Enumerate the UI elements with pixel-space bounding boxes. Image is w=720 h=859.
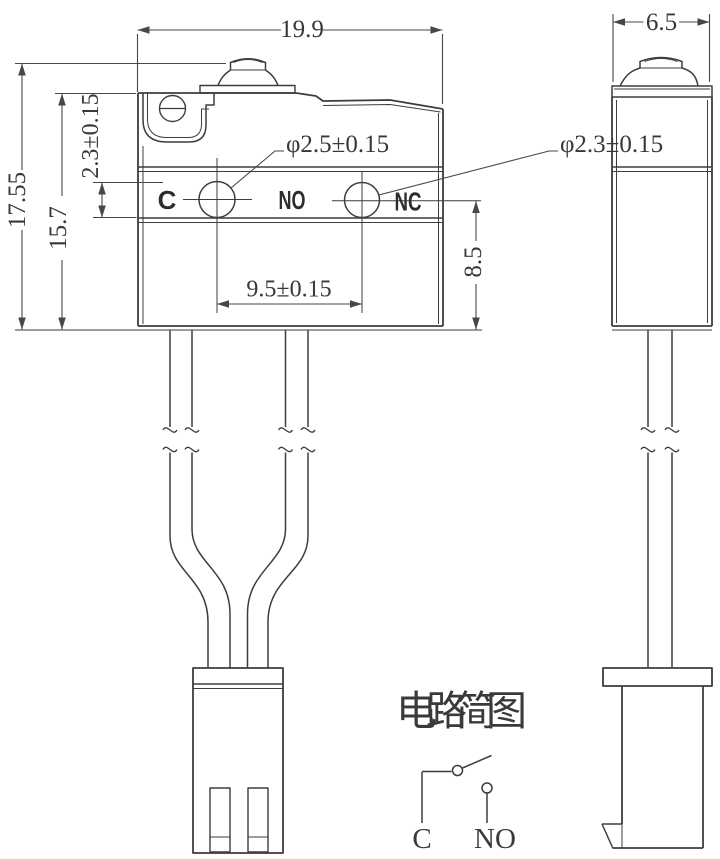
plunger-base-plate <box>200 86 295 94</box>
side-cap <box>612 86 712 97</box>
front-wires <box>163 330 315 668</box>
side-break-symbol <box>641 428 679 452</box>
dim-center-bottom-text: 8.5 <box>460 246 487 277</box>
circuit-title: 电路简图 <box>396 687 527 735</box>
circuit-switch-lever <box>463 756 492 769</box>
break-symbol <box>163 428 315 452</box>
front-lever-top <box>296 93 443 109</box>
connector-slot-right <box>248 788 268 852</box>
connector-slot-left <box>210 788 230 852</box>
hole-left-diameter-text: φ2.5±0.15 <box>286 131 389 158</box>
side-view <box>602 58 712 849</box>
side-plunger-button <box>620 58 698 87</box>
hole-right-diameter-text: φ2.3±0.15 <box>560 131 663 158</box>
leader-hole-left <box>231 151 284 188</box>
technical-drawing-page: C NO NC <box>0 0 720 859</box>
circuit-no-contact-icon <box>482 783 492 793</box>
mounting-hook-inner <box>148 93 210 138</box>
side-connector <box>602 668 712 849</box>
circuit-common-contact-icon <box>453 766 463 776</box>
connector-body <box>193 668 283 853</box>
dimensions: 19.9 6.5 17.55 15.7 2.3±0.15 9.5±0.15 8.… <box>4 9 710 330</box>
circuit-label-c: C <box>412 823 431 855</box>
dim-hole-offset-text: 2.3±0.15 <box>78 93 104 178</box>
wire-right-outer <box>268 330 308 668</box>
dim-total-height-text: 17.55 <box>4 172 31 228</box>
dim-hole-offset-ext <box>93 183 163 218</box>
wire-left-outer <box>170 330 208 668</box>
dim-width-text: 19.9 <box>280 16 324 43</box>
dim-body-height-text: 15.7 <box>45 206 72 250</box>
side-connector-flange <box>603 668 712 686</box>
front-connector <box>193 668 283 853</box>
terminal-label-no: NO <box>279 185 306 215</box>
wire-left-inner <box>192 330 230 668</box>
dim-hole-spacing-text: 9.5±0.15 <box>246 277 331 303</box>
wire-right-inner <box>248 330 286 668</box>
technical-drawing-canvas: C NO NC <box>0 0 720 859</box>
plunger-button <box>218 59 278 86</box>
circuit-label-no: NO <box>474 823 516 855</box>
circuit-c-lead <box>422 772 452 824</box>
terminal-label-nc: NC <box>395 187 422 217</box>
side-connector-foot-diagonal <box>602 824 613 849</box>
leader-hole-right <box>379 151 558 195</box>
mounting-hook-outer <box>143 93 214 142</box>
dim-side-width-text: 6.5 <box>646 9 677 36</box>
terminal-label-c: C <box>158 185 177 215</box>
circuit-diagram: 电路简图 C NO <box>396 687 527 855</box>
